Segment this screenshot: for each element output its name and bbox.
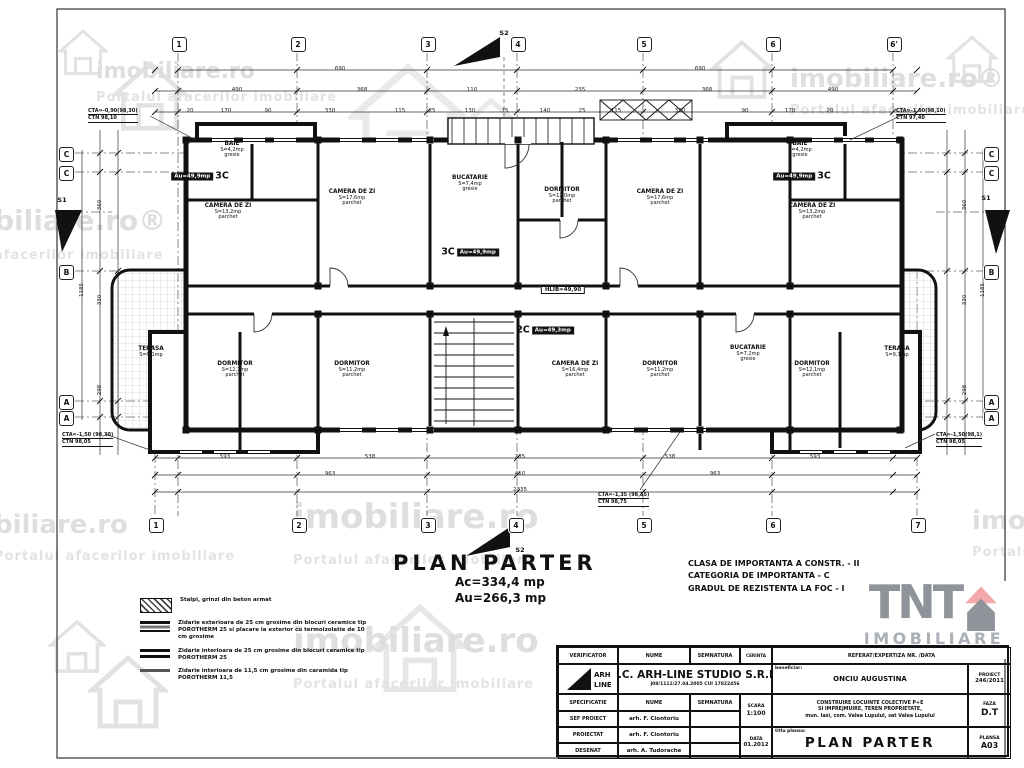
beneficiary-cell: beneficiar: ONCIU AUGUSTINA <box>772 664 968 694</box>
dimension-label: 1185 <box>980 283 986 297</box>
grid-bubble: A <box>984 395 999 410</box>
grid-bubble: 1 <box>149 518 164 533</box>
level-annotation: CTA=-1,35 (98,35)CTN 98,75 <box>598 492 649 507</box>
dimension-label: 1185 <box>79 283 85 297</box>
room-label: TERASAS=9,1mp <box>884 346 910 358</box>
room-label: CAMERA DE ZIS=17,6mpparchet <box>637 189 684 207</box>
dimension-label: 110 <box>467 87 478 93</box>
beneficiary-label: beneficiar: <box>775 666 802 671</box>
level-annotation: CTA=-1,50 (98,30)CTN 98,05 <box>62 432 113 447</box>
drawing-sheet: imobiliare.roPortalul afacerilor imobili… <box>0 0 1024 768</box>
info-line-1: CLASA DE IMPORTANTA A CONSTR. - II <box>688 558 859 570</box>
company-registration: J08/1111/27.04.2005 CUI 17822456 <box>650 683 739 688</box>
grid-bubble: 6 <box>766 518 781 533</box>
project-number-cell: PROIECT 246/2011 <box>968 664 1011 694</box>
plan-title: PLAN PARTER <box>393 551 597 575</box>
dimension-label: 368 <box>702 87 713 93</box>
tb-referat-header: REFERAT/EXPERTIZA NR. /DATA <box>772 647 1011 664</box>
dimension-label: 90 <box>265 108 272 114</box>
grid-bubble: A <box>984 411 999 426</box>
legend-swatch <box>140 598 172 613</box>
tnt-logo-text: TNT <box>869 581 961 625</box>
legend-text: Zidarie interioara de 11,5 cm grosime di… <box>178 668 370 682</box>
dimension-label: 538 <box>365 454 376 460</box>
section-label: S2 <box>499 29 508 37</box>
apartment-badge: 2CAu=49,3mp <box>516 325 574 336</box>
sheet-number: A03 <box>981 741 998 751</box>
grid-bubble: 5 <box>637 37 652 52</box>
tb-verificator-label: VERIFICATOR <box>558 647 618 664</box>
tb-proiectat-label: PROIECTAT <box>558 727 618 743</box>
company-name: S.C. ARH-LINE STUDIO S.R.L. <box>618 670 772 682</box>
dimension-label: 410 <box>515 471 526 477</box>
dimension-label: 115 <box>611 108 622 114</box>
legend-swatch <box>140 649 170 658</box>
legend: Stalpi, grinzi din beton armatZidarie ex… <box>140 597 370 689</box>
legend-text: Zidarie interioara de 25 cm grosime din … <box>178 648 370 662</box>
grid-bubble: B <box>59 265 74 280</box>
grid-bubble: C <box>984 166 999 181</box>
grid-bubble: C <box>59 147 74 162</box>
svg-text:ARH: ARH <box>594 671 611 679</box>
title-block: VERIFICATOR NUME SEMNATURA CERINTA REFER… <box>556 645 1009 757</box>
dimension-label: 75 <box>502 108 509 114</box>
apartment-badge: Au=49,9mp3C <box>171 171 229 182</box>
grid-bubble: C <box>984 147 999 162</box>
dimension-label: 170 <box>221 108 232 114</box>
dimension-label: 170 <box>785 108 796 114</box>
grid-bubble: 2 <box>291 37 306 52</box>
legend-item: Zidarie exterioara de 25 cm grosime din … <box>140 620 370 641</box>
level-annotation: CTA=-1,50(98,1)CTN 98,05 <box>936 432 982 447</box>
date-value: 01.2012 <box>743 742 768 749</box>
room-label: BAIES=4,2mpgresie <box>788 141 811 159</box>
room-label: CAMERA DE ZIS=13,2mpparchet <box>789 203 836 221</box>
grid-bubble: 5 <box>637 518 652 533</box>
importance-info: CLASA DE IMPORTANTA A CONSTR. - II CATEG… <box>688 558 859 595</box>
tb-nume-header: NUME <box>618 647 690 664</box>
tnt-house-icon <box>963 581 999 631</box>
legend-item: Zidarie interioara de 25 cm grosime din … <box>140 648 370 662</box>
room-label: BUCATARIES=7,4mpgresie <box>452 175 488 193</box>
level-annotation: CTA=-1,50(98,10)CTN 97,40 <box>896 108 946 123</box>
desenat-signature-cell <box>690 743 740 759</box>
sheet-title-label: titlu plansa: <box>775 729 806 734</box>
dimension-label: 330 <box>97 295 103 306</box>
grid-bubble: 2 <box>292 518 307 533</box>
dimension-label: 115 <box>395 108 406 114</box>
dimension-label: 235 <box>515 454 526 460</box>
tb-desenat-label: DESENAT <box>558 743 618 759</box>
date-cell: DATA 01.2012 <box>740 727 772 759</box>
dimension-label: 330 <box>962 295 968 306</box>
dimension-label: 690 <box>695 66 706 72</box>
grid-bubble: 6' <box>887 37 902 52</box>
dimension-label: 2335 <box>513 487 527 493</box>
company-cell: S.C. ARH-LINE STUDIO S.R.L. J08/1111/27.… <box>618 664 772 694</box>
scale-value: 1:100 <box>746 710 765 717</box>
project-number: 246/2011 <box>975 678 1004 685</box>
legend-swatch <box>140 621 170 632</box>
sef-signature-cell <box>690 711 740 727</box>
grid-bubble: A <box>59 411 74 426</box>
dimension-label: 538 <box>665 454 676 460</box>
grid-bubble: 4 <box>511 37 526 52</box>
legend-item: Zidarie interioara de 11,5 cm grosime di… <box>140 668 370 682</box>
grid-bubble: B <box>984 265 999 280</box>
apartment-badge: 3CAu=49,9mp <box>441 247 499 258</box>
tb-cerinta-header: CERINTA <box>740 647 772 664</box>
room-label: BAIES=4,2mpgresie <box>220 141 243 159</box>
dimension-label: 368 <box>357 87 368 93</box>
sheet-title-cell: titlu plansa: PLAN PARTER <box>772 727 968 759</box>
proiectat-name: arh. F. Ciontoriu <box>618 727 690 743</box>
arh-line-logo: ARH LINE <box>558 664 618 694</box>
grid-bubble: 7 <box>911 518 926 533</box>
scale-cell: SCARA 1:100 <box>740 694 772 727</box>
desenat-name: arh. A. Tudorache <box>618 743 690 759</box>
info-line-3: GRADUL DE REZISTENTA LA FOC - I <box>688 583 859 595</box>
info-line-2: CATEGORIA DE IMPORTANTA - C <box>688 570 859 582</box>
dimension-label: 20 <box>827 108 834 114</box>
tb-specificatie-label: SPECIFICATIE <box>558 694 618 711</box>
grid-bubble: 3 <box>421 37 436 52</box>
room-label: DORMITORS=11,2mpparchet <box>334 361 369 379</box>
usable-area: Au=266,3 mp <box>455 591 597 607</box>
grid-bubble: 1 <box>172 37 187 52</box>
dimension-label: 298 <box>97 385 103 396</box>
tb-semnatura2-header: SEMNATURA <box>690 694 740 711</box>
beneficiary-name: ONCIU AUGUSTINA <box>833 675 907 683</box>
dimension-label: 690 <box>335 66 346 72</box>
svg-text:LINE: LINE <box>594 681 611 689</box>
room-label: TERASAS=9,1mp <box>138 346 164 358</box>
sheet-title: PLAN PARTER <box>805 735 935 751</box>
grid-bubble: 6 <box>766 37 781 52</box>
tb-nume2-header: NUME <box>618 694 690 711</box>
grid-bubble: A <box>59 395 74 410</box>
grid-bubble: C <box>59 166 74 181</box>
room-label: DORMITORS=12,0mpparchet <box>544 187 579 205</box>
drawing-title: PLAN PARTER Ac=334,4 mp Au=266,3 mp <box>393 551 597 606</box>
project-description-3: mun. Iasi, com. Valea Lupului, sat Valea… <box>805 714 935 720</box>
room-label: BUCATARIES=7,2mpgresie <box>730 345 766 363</box>
legend-text: Stalpi, grinzi din beton armat <box>180 597 272 604</box>
legend-swatch <box>140 669 170 672</box>
grid-bubble: 4 <box>509 518 524 533</box>
legend-item: Stalpi, grinzi din beton armat <box>140 597 370 613</box>
room-label: DORMITORS=12,1mpparchet <box>217 361 252 379</box>
dimension-label: 25 <box>429 108 436 114</box>
room-label: DORMITORS=11,2mpparchet <box>642 361 677 379</box>
legend-text: Zidarie exterioara de 25 cm grosime din … <box>178 620 370 641</box>
dimension-label: 140 <box>540 108 551 114</box>
room-label: DORMITORS=12,1mpparchet <box>794 361 829 379</box>
tb-semnatura-header: SEMNATURA <box>690 647 740 664</box>
dimension-label: 593 <box>810 454 821 460</box>
phase-cell: FAZA D.T <box>968 694 1011 727</box>
section-label: S1 <box>981 194 990 202</box>
dimension-label: 963 <box>710 471 721 477</box>
phase-value: D.T <box>981 708 998 719</box>
room-label: CAMERA DE ZIS=13,2mpparchet <box>205 203 252 221</box>
dimension-label: 490 <box>232 87 243 93</box>
dimension-label: 490 <box>828 87 839 93</box>
room-label: CAMERA DE ZIS=17,6mpparchet <box>329 189 376 207</box>
dimension-label: 25 <box>579 108 586 114</box>
proiectat-signature-cell <box>690 727 740 743</box>
sheet-number-cell: PLANSA A03 <box>968 727 1011 759</box>
apartment-badge: Au=49,9mp3C <box>773 171 831 182</box>
dimension-label: 20 <box>187 108 194 114</box>
dimension-label: 130 <box>465 108 476 114</box>
tb-sef-proiect-label: SEF PROIECT <box>558 711 618 727</box>
project-description-cell: CONSTRUIRE LOCUINTE COLECTIVE P+E SI IMP… <box>772 694 968 727</box>
dimension-label: 330 <box>325 108 336 114</box>
built-area: Ac=334,4 mp <box>455 575 597 591</box>
section-label: S1 <box>57 196 66 204</box>
dimension-label: 963 <box>325 471 336 477</box>
grid-bubble: 3 <box>421 518 436 533</box>
sef-proiect-name: arh. F. Ciontoriu <box>618 711 690 727</box>
room-label: CAMERA DE ZIS=16,4mpparchet <box>552 361 599 379</box>
dimension-label: 298 <box>962 385 968 396</box>
dimension-label: 360 <box>97 200 103 211</box>
dimension-label: 593 <box>220 454 231 460</box>
level-annotation: CTA=-0,90(98,30)CTN 98,10 <box>88 108 138 123</box>
hall-level-label: HLIB=49,90 <box>541 286 585 294</box>
dimension-label: 330 <box>675 108 686 114</box>
dimension-label: 235 <box>575 87 586 93</box>
dimension-label: 360 <box>962 200 968 211</box>
dimension-label: 90 <box>742 108 749 114</box>
